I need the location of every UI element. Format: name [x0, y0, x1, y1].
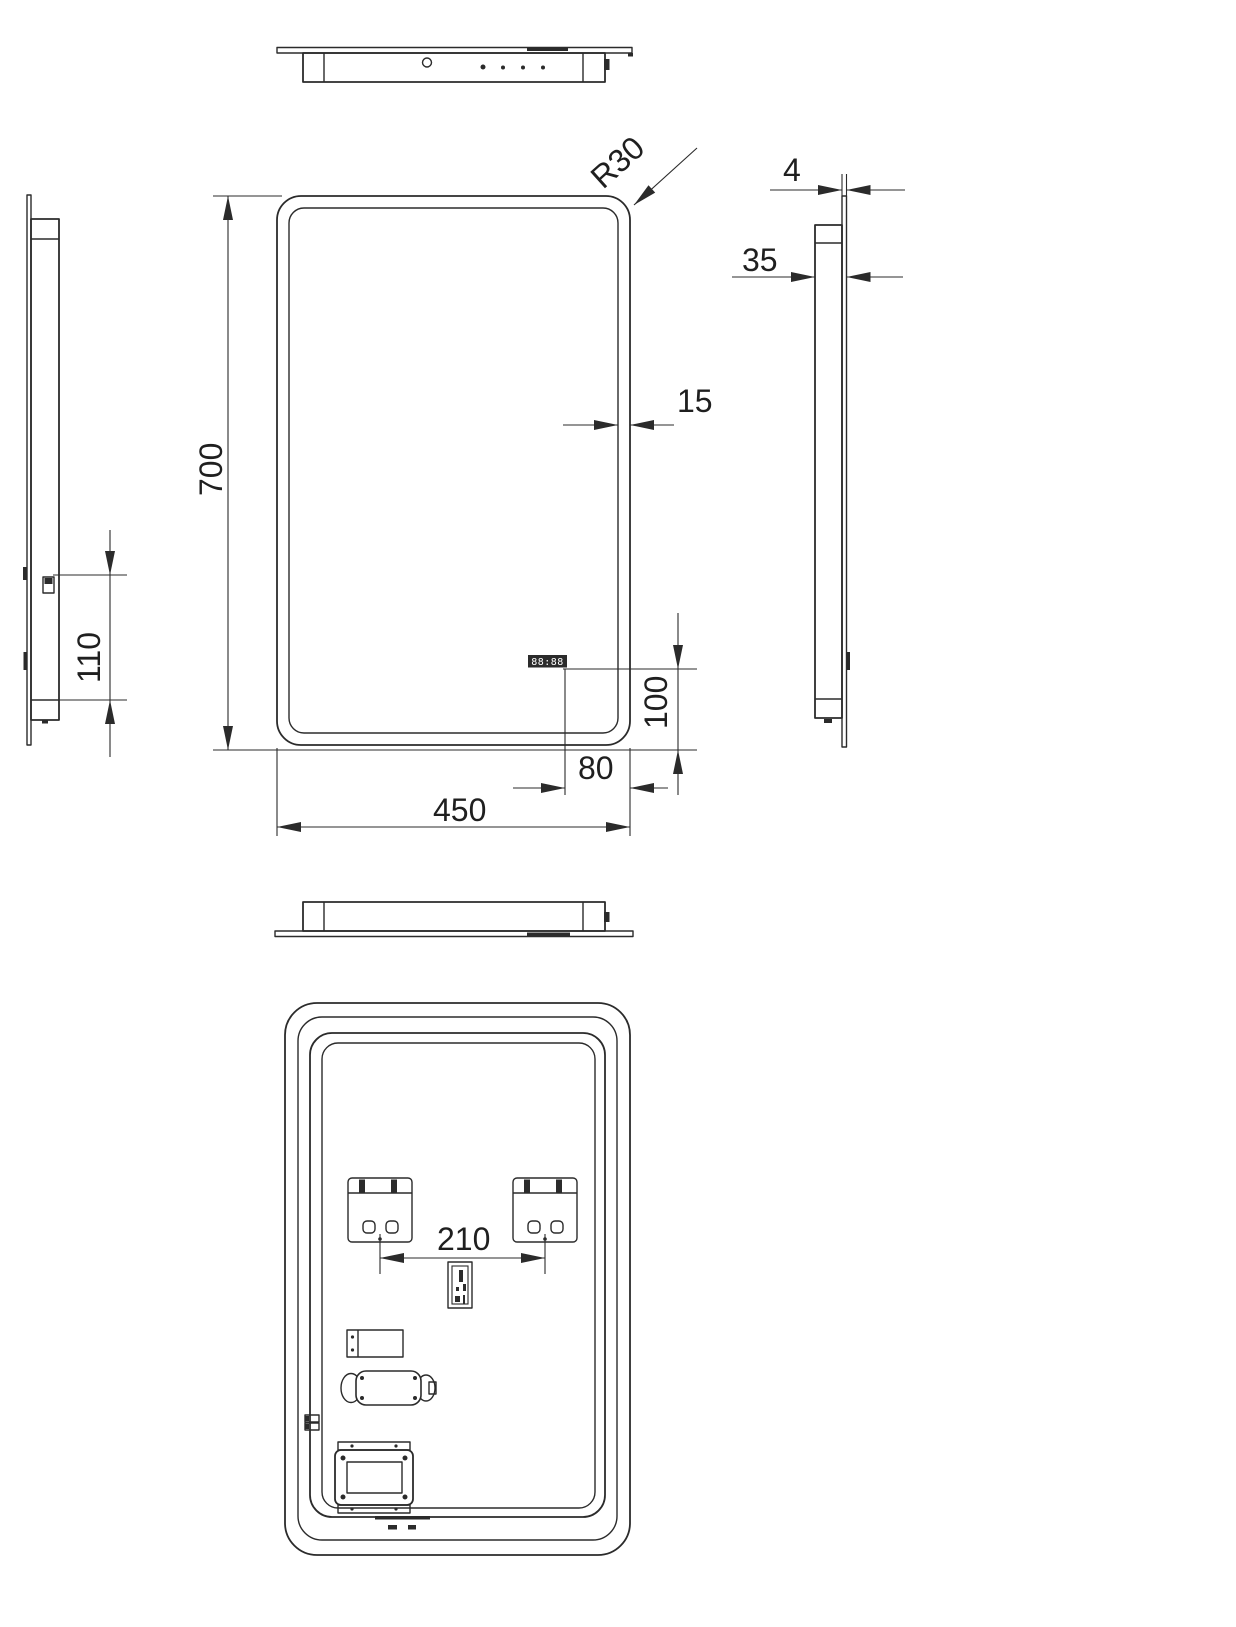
dim-switch-from-bottom: 110	[53, 530, 127, 757]
clock-display-digits: 88:88	[531, 657, 564, 668]
housing-top	[303, 53, 605, 82]
touch-switch-mark	[23, 567, 28, 580]
front-view: 88:88	[277, 196, 630, 745]
arrowhead	[223, 196, 233, 220]
arrowhead	[673, 750, 683, 774]
mirror-outline	[277, 196, 630, 745]
arrowhead	[791, 272, 815, 282]
housing-left	[31, 219, 59, 720]
drawing-canvas: 110 88:88 R30 700 15 10	[0, 0, 1236, 1627]
driver-box	[347, 1330, 403, 1357]
dim-height: 700	[193, 196, 282, 750]
arrowhead	[594, 420, 618, 430]
arrowhead	[847, 185, 871, 195]
arrowhead	[847, 272, 871, 282]
touch-button-dot	[541, 66, 545, 70]
side-nub	[604, 912, 610, 922]
arrowhead	[606, 822, 630, 832]
bracket-hole	[386, 1221, 398, 1233]
bottom-profile-view	[275, 902, 633, 937]
dim-100-label: 100	[638, 676, 674, 729]
dim-display-from-right: 80	[513, 750, 668, 793]
bottom-edge-marks	[375, 1516, 430, 1530]
mounting-hole	[423, 58, 432, 67]
touch-button-dot	[521, 66, 525, 70]
ballast-component	[341, 1371, 436, 1405]
arrowhead	[521, 1253, 545, 1263]
arrowhead	[277, 822, 301, 832]
arrowhead	[105, 700, 115, 724]
mounting-bracket-left	[348, 1178, 412, 1244]
frame-clip	[305, 1415, 319, 1430]
technical-drawing: 110 88:88 R30 700 15 10	[0, 0, 1236, 1627]
arrowhead	[541, 783, 565, 793]
dim-110-label: 110	[71, 632, 107, 683]
mounting-bracket-right	[513, 1178, 577, 1244]
arrowhead	[673, 645, 683, 669]
bracket-hole	[551, 1221, 563, 1233]
back-panel	[310, 1033, 605, 1517]
dim-80-label: 80	[578, 750, 614, 786]
back-panel-inner	[322, 1043, 595, 1508]
dim-display-from-bottom: 100	[638, 613, 683, 795]
clock-edge-mark	[24, 652, 28, 670]
touch-button-dot	[501, 66, 505, 70]
dim-r30-label: R30	[584, 129, 652, 195]
arrowhead	[105, 551, 115, 575]
side-view-left	[23, 195, 59, 745]
arrowhead	[818, 185, 842, 195]
clock-edge-mark	[847, 652, 851, 670]
dim-35-label: 35	[742, 242, 778, 278]
terminal-connector	[448, 1262, 472, 1308]
dim-bezel: 15	[563, 383, 713, 430]
touch-button-dot	[481, 65, 486, 70]
back-view: 210	[285, 1003, 630, 1555]
arrowhead	[630, 420, 654, 430]
arrowhead	[380, 1253, 404, 1263]
mirror-inner-edge	[289, 208, 618, 733]
dim-450-label: 450	[433, 792, 486, 828]
junction-box	[335, 1442, 413, 1513]
back-outline	[285, 1003, 630, 1555]
back-frame-edge	[298, 1017, 617, 1540]
housing-bottom	[303, 902, 605, 931]
dim-glass-thickness: 4	[770, 152, 905, 195]
side-view-right	[815, 174, 850, 747]
housing-right	[815, 225, 842, 718]
top-profile-view	[277, 48, 633, 83]
bracket-hole	[363, 1221, 375, 1233]
dim-210-label: 210	[437, 1221, 490, 1257]
side-nub	[604, 59, 610, 70]
display-window-edge	[527, 48, 568, 52]
dim-4-label: 4	[783, 152, 801, 188]
arrowhead	[223, 726, 233, 750]
dim-15-label: 15	[677, 383, 713, 419]
display-window-edge	[527, 933, 570, 937]
arrowhead	[630, 783, 654, 793]
dim-700-label: 700	[193, 443, 229, 496]
dim-depth: 35	[732, 242, 903, 282]
bracket-hole	[528, 1221, 540, 1233]
dim-corner-radius: R30	[584, 129, 697, 205]
